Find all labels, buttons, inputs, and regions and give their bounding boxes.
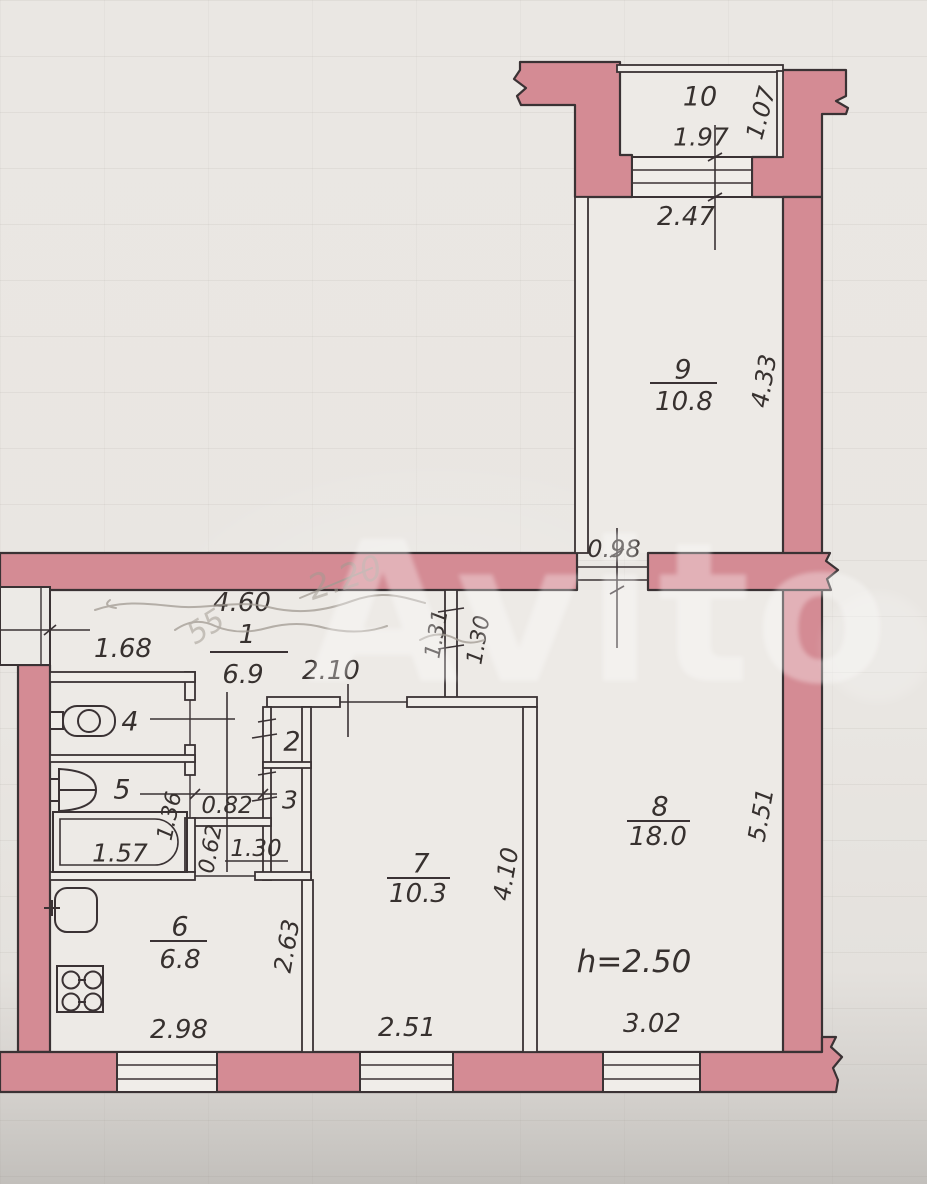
dim-298: 2.98 (150, 1015, 208, 1045)
room9-area: 10.8 (655, 387, 713, 417)
room1-area: 6.9 (222, 660, 263, 690)
ceiling-height-note: h=2.50 (577, 944, 692, 980)
watermark-circle (822, 592, 927, 702)
dim-168: 1.68 (94, 634, 152, 664)
room9-number: 9 (674, 355, 691, 386)
dim-098: 0.98 (587, 535, 640, 563)
room5-number: 5 (113, 775, 130, 806)
window-room8 (603, 1052, 700, 1092)
dim-302: 3.02 (623, 1009, 681, 1039)
wall-mid-left (0, 553, 577, 590)
dim-251: 2.51 (378, 1013, 436, 1043)
room3-number: 3 (282, 786, 298, 815)
balcony-railing (617, 65, 783, 72)
dim-210: 2.10 (302, 656, 360, 686)
wall-left (18, 665, 50, 1052)
left-wall-opening (0, 587, 50, 665)
bath-top-wall (50, 672, 195, 682)
dim-247: 2.47 (657, 202, 715, 232)
room7-area: 10.3 (389, 879, 447, 909)
wall-mid-right (648, 553, 838, 590)
floor-plan-drawing: 10 1.97 1.07 2.47 9 10.8 4.33 0.98 4.60 … (0, 0, 927, 1184)
room1-number: 1 (239, 620, 256, 650)
floor-plan-photo: Avito (0, 0, 927, 1184)
wall-right (783, 197, 822, 1052)
dim-460: 4.60 (213, 588, 271, 618)
room6-number: 6 (171, 912, 188, 943)
dim-157: 1.57 (92, 839, 148, 868)
dim-197: 1.97 (673, 123, 729, 152)
room8-area: 18.0 (629, 822, 687, 852)
room7-number: 7 (412, 849, 429, 880)
room8-number: 8 (651, 792, 668, 823)
wall-top-left-step (514, 62, 632, 197)
room9-left-wall (575, 197, 588, 553)
dim-130-kitchen: 1.30 (230, 836, 281, 862)
room4-number: 4 (121, 707, 138, 738)
window-balcony (632, 157, 752, 197)
window-kitchen (117, 1052, 217, 1092)
room6-area: 6.8 (159, 945, 200, 975)
room10-number: 10 (683, 82, 717, 113)
room2-number: 2 (283, 727, 300, 758)
window-room7 (360, 1052, 453, 1092)
room7-right-wall (523, 707, 537, 1052)
dim-082: 0.82 (201, 793, 252, 819)
kitchen-partition (302, 880, 313, 1052)
